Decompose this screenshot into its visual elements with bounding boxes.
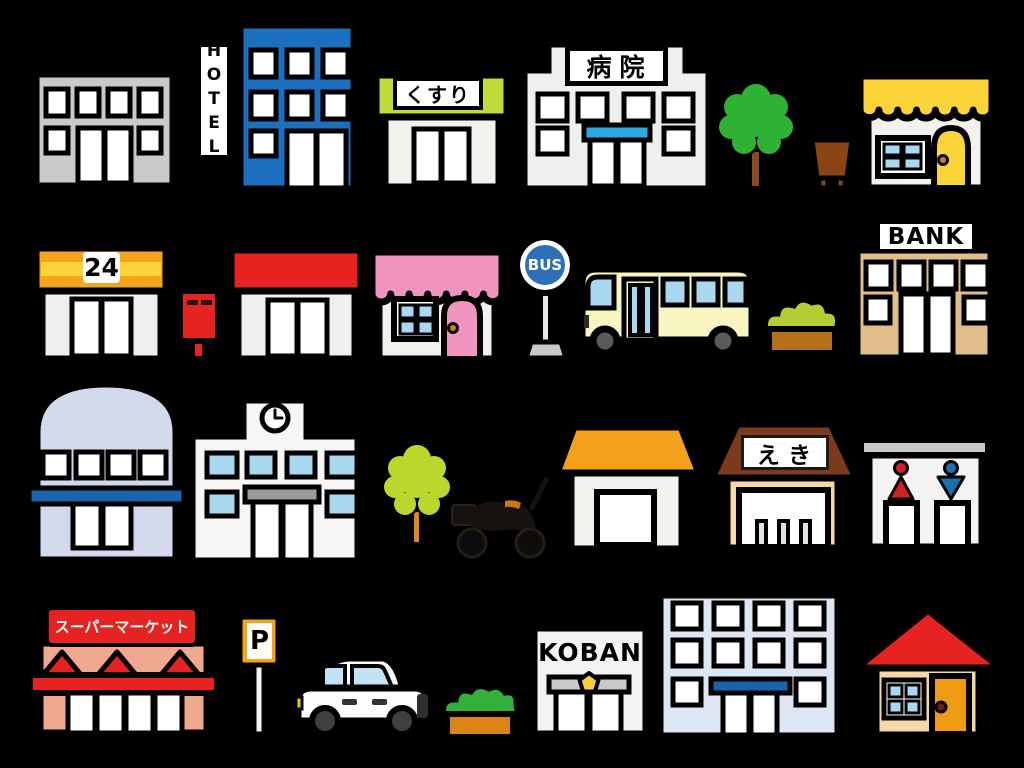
window xyxy=(899,262,924,289)
window xyxy=(46,89,68,116)
trash-bin xyxy=(812,140,852,187)
door-knob xyxy=(939,156,948,165)
door xyxy=(72,299,101,356)
door xyxy=(928,294,953,355)
door xyxy=(751,693,777,735)
window xyxy=(963,262,988,289)
window xyxy=(664,128,693,154)
wheel xyxy=(389,708,415,734)
shop-fascia xyxy=(231,250,361,291)
tree-green xyxy=(719,84,793,188)
window xyxy=(251,92,276,119)
hotel-building xyxy=(240,25,354,189)
bin-body xyxy=(812,140,852,178)
post-body xyxy=(180,291,218,341)
mail-slot xyxy=(201,300,212,305)
tree-lime xyxy=(384,445,450,544)
door xyxy=(597,492,654,545)
wheel xyxy=(516,529,544,557)
door-handle xyxy=(372,699,387,705)
door xyxy=(723,693,749,735)
male-icon xyxy=(945,462,958,475)
front-window xyxy=(352,666,392,687)
door xyxy=(901,294,926,355)
door xyxy=(442,129,469,183)
door-knob xyxy=(449,324,458,333)
tree-trunk xyxy=(750,150,761,188)
planter xyxy=(769,329,835,353)
door xyxy=(78,128,104,183)
door xyxy=(317,131,346,188)
door-pane xyxy=(643,285,652,335)
door xyxy=(414,129,441,183)
dome-building xyxy=(29,384,184,560)
door xyxy=(126,693,153,733)
door xyxy=(287,131,316,188)
mail-slot xyxy=(187,300,198,305)
window xyxy=(139,128,161,153)
window xyxy=(323,50,348,77)
school xyxy=(192,400,358,561)
roof xyxy=(557,427,699,473)
front-panel xyxy=(417,694,428,718)
door xyxy=(155,693,182,733)
tree-trunk xyxy=(412,510,421,544)
ticket-gate xyxy=(779,521,788,546)
pink-awning-shop xyxy=(372,252,502,359)
door xyxy=(102,299,131,356)
wheel xyxy=(458,529,486,557)
office-building xyxy=(36,74,173,186)
window xyxy=(247,453,275,477)
door xyxy=(937,503,968,547)
wheel xyxy=(312,708,338,734)
female-icon xyxy=(895,462,908,475)
window xyxy=(327,492,357,516)
roof-band xyxy=(861,440,988,455)
door-knob xyxy=(936,702,946,712)
clipart-stage: HOTEL くすり 病院 24 BUS BANK えき KOBAN スーパーマー… xyxy=(0,0,1024,768)
window xyxy=(251,50,276,77)
town-clipart-canvas xyxy=(0,0,1024,768)
door xyxy=(97,693,124,733)
entrance-sign xyxy=(245,487,319,502)
pharmacy-sign: くすり xyxy=(393,77,483,110)
door xyxy=(103,504,131,548)
window xyxy=(866,262,891,289)
convenience-sign: 24 xyxy=(83,252,120,283)
window-panes xyxy=(884,144,921,169)
window xyxy=(538,128,567,154)
window xyxy=(323,92,348,119)
window xyxy=(931,262,956,289)
police-badge xyxy=(580,673,599,692)
car xyxy=(296,658,428,734)
station-sign: えき xyxy=(741,435,829,470)
supermarket-sign: スーパーマーケット xyxy=(45,606,199,647)
door xyxy=(73,504,101,548)
bus xyxy=(582,269,752,353)
door xyxy=(298,300,327,356)
hospital-sign: 病院 xyxy=(565,46,668,86)
handlebar xyxy=(532,482,545,508)
window xyxy=(140,452,166,478)
window xyxy=(866,297,890,323)
awning xyxy=(372,252,502,302)
bank xyxy=(857,250,991,358)
planter xyxy=(447,714,513,737)
door-handle xyxy=(342,699,357,705)
window xyxy=(251,131,276,156)
tail-light xyxy=(296,697,302,709)
wheel xyxy=(593,329,617,353)
window xyxy=(76,452,102,478)
door xyxy=(556,692,587,733)
orange-roof-house xyxy=(557,427,699,549)
office-building-2 xyxy=(660,595,838,736)
window xyxy=(77,89,99,116)
window xyxy=(108,452,134,478)
window xyxy=(664,94,693,121)
ticket-gate xyxy=(757,521,766,546)
door xyxy=(105,128,131,183)
bus-window xyxy=(725,279,746,305)
window xyxy=(964,297,988,323)
door xyxy=(590,692,621,733)
parking-sign-label: P xyxy=(247,623,272,659)
window xyxy=(139,89,161,116)
door xyxy=(886,503,917,547)
motorcycle xyxy=(452,477,549,557)
bank-sign: BANK xyxy=(876,220,976,253)
red-band xyxy=(30,675,217,693)
supermarket xyxy=(30,643,217,733)
sign-pole xyxy=(541,290,550,342)
bus-stop-sign: BUS xyxy=(520,252,570,278)
mirror xyxy=(543,477,549,483)
hedge-planter xyxy=(766,300,838,353)
door xyxy=(268,300,297,356)
public-restroom xyxy=(861,440,988,547)
door xyxy=(618,140,644,186)
window xyxy=(108,89,130,116)
door xyxy=(590,140,616,186)
wheel xyxy=(711,329,735,353)
roof xyxy=(856,610,1001,668)
rear-window xyxy=(323,666,345,687)
window xyxy=(46,128,68,153)
awning xyxy=(860,76,992,118)
window xyxy=(287,453,315,477)
door xyxy=(253,502,281,560)
ticket-gate xyxy=(801,521,810,546)
entrance-canopy xyxy=(584,125,650,140)
window xyxy=(578,94,607,121)
door-pane xyxy=(630,285,639,335)
marker-light xyxy=(584,315,589,328)
post-box xyxy=(180,291,218,358)
window xyxy=(43,452,69,478)
window xyxy=(207,492,237,516)
windshield xyxy=(588,277,614,308)
hotel-sign: HOTEL xyxy=(196,42,232,160)
red-roof-house xyxy=(856,610,1001,735)
red-awning-shop xyxy=(231,250,361,359)
police-box-sign: KOBAN xyxy=(536,636,644,668)
window xyxy=(207,453,237,477)
window xyxy=(538,94,567,121)
window xyxy=(287,50,312,77)
bus-window xyxy=(663,279,687,305)
window-panes xyxy=(400,305,433,334)
hedge-planter-2 xyxy=(444,687,519,737)
door xyxy=(68,693,95,733)
yellow-awning-shop xyxy=(860,76,992,188)
window xyxy=(327,453,357,477)
window xyxy=(624,94,653,121)
door xyxy=(283,502,311,560)
bus-window xyxy=(694,279,718,305)
sign-base xyxy=(526,342,566,358)
window xyxy=(287,92,312,119)
sign-pole xyxy=(255,660,263,733)
